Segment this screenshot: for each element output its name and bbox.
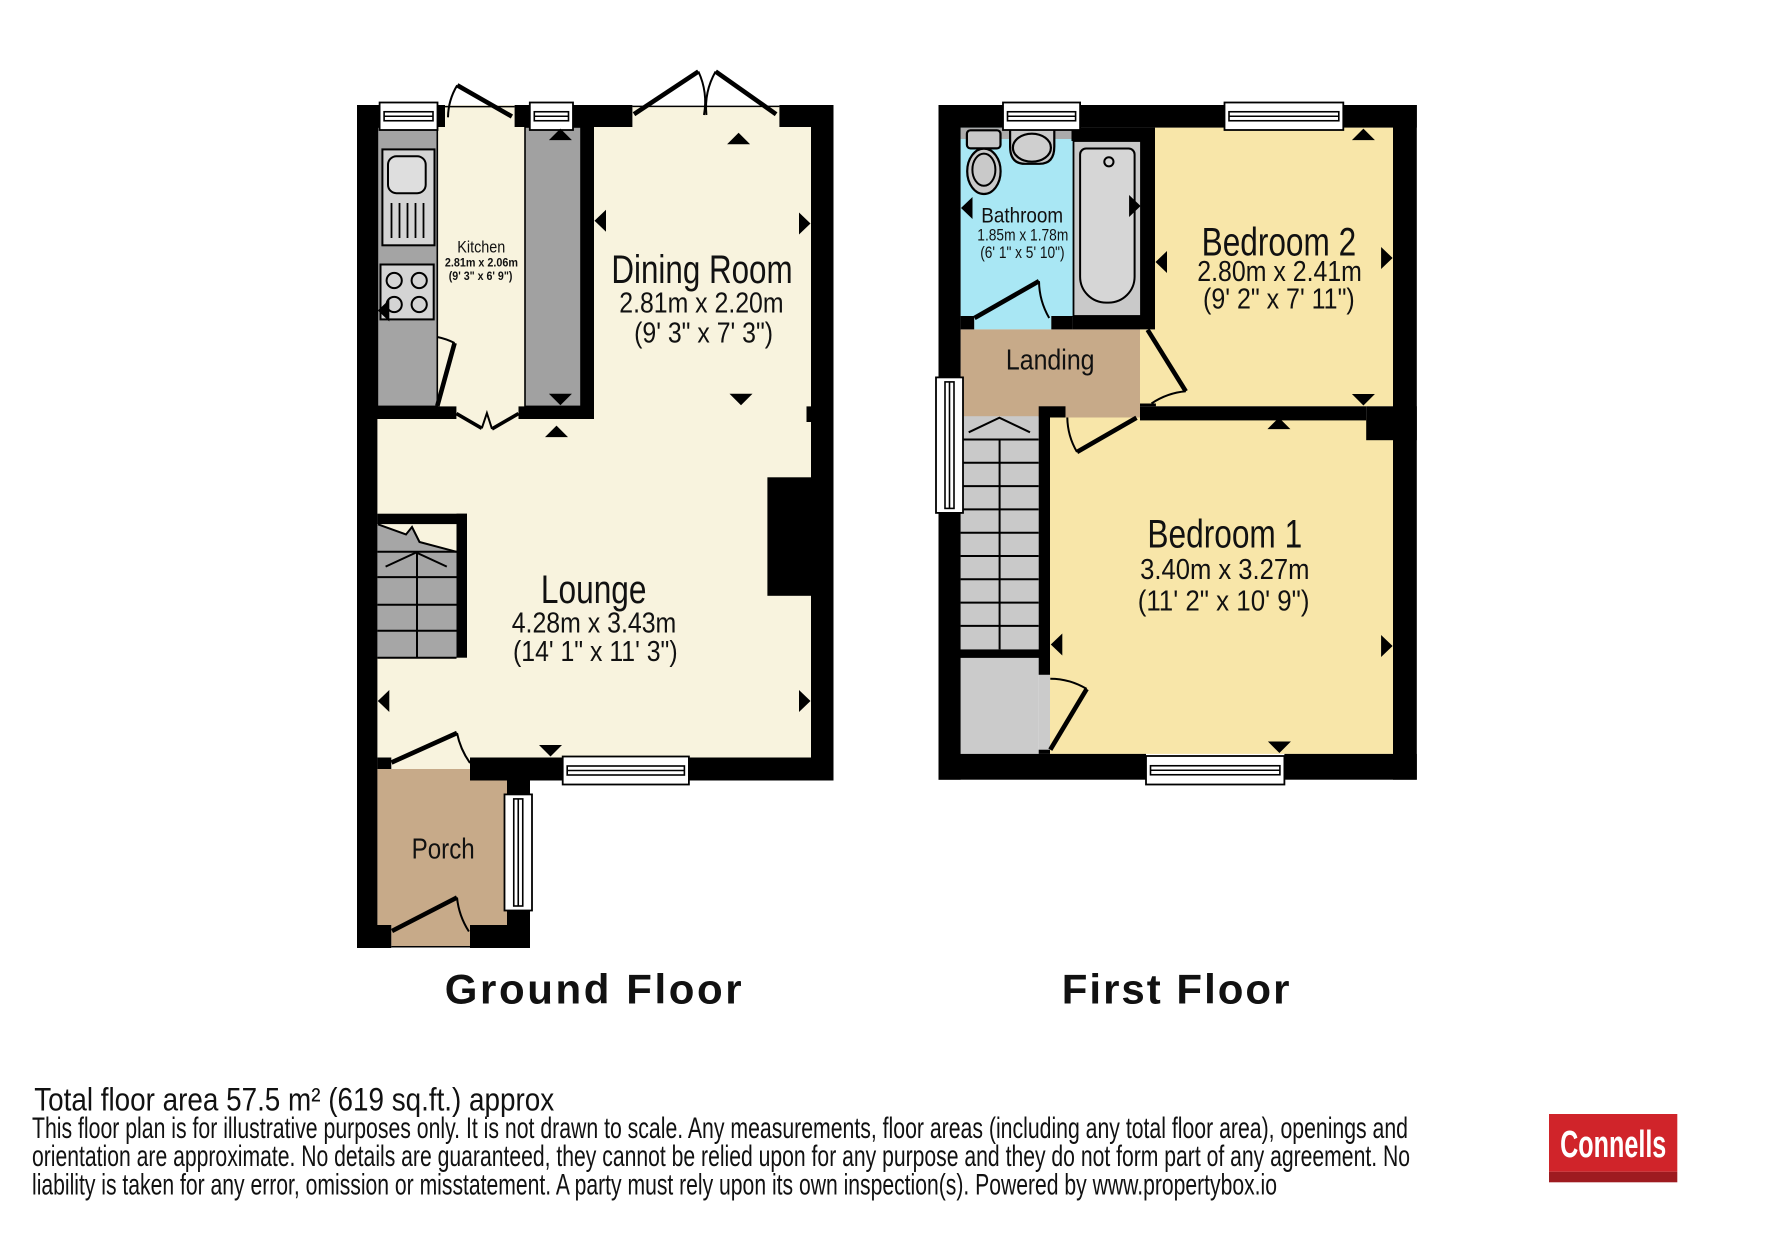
svg-text:(9' 3" x 7' 3"): (9' 3" x 7' 3") (634, 318, 773, 350)
svg-text:This floor plan is for illustr: This floor plan is for illustrative purp… (32, 1113, 1408, 1145)
svg-text:2.81m x 2.06m: 2.81m x 2.06m (445, 255, 518, 269)
svg-text:Dining Room: Dining Room (611, 248, 792, 292)
svg-text:Kitchen: Kitchen (457, 237, 505, 256)
svg-text:liability is taken for any err: liability is taken for any error, omissi… (32, 1170, 1277, 1202)
svg-text:Lounge: Lounge (541, 568, 647, 612)
svg-text:First Floor: First Floor (1062, 965, 1292, 1012)
svg-text:orientation are approximate. N: orientation are approximate. No details … (32, 1141, 1410, 1173)
svg-text:4.28m x 3.43m: 4.28m x 3.43m (512, 608, 677, 640)
svg-text:(6' 1" x 5' 10"): (6' 1" x 5' 10") (980, 243, 1064, 262)
svg-text:(9' 3" x 6' 9"): (9' 3" x 6' 9") (449, 269, 513, 283)
svg-text:Landing: Landing (1006, 344, 1095, 376)
svg-text:(11' 2" x 10' 9"): (11' 2" x 10' 9") (1138, 586, 1310, 618)
svg-text:(9' 2" x 7' 11"): (9' 2" x 7' 11") (1203, 283, 1355, 315)
svg-text:3.40m x 3.27m: 3.40m x 3.27m (1140, 554, 1309, 586)
svg-text:Bathroom: Bathroom (981, 205, 1063, 228)
svg-text:Connells: Connells (1560, 1124, 1666, 1166)
svg-text:Porch: Porch (412, 834, 475, 866)
svg-text:Bedroom 1: Bedroom 1 (1147, 513, 1302, 557)
svg-text:1.85m x 1.78m: 1.85m x 1.78m (977, 226, 1068, 245)
svg-text:2.81m x 2.20m: 2.81m x 2.20m (619, 288, 783, 320)
svg-text:(14' 1" x 11' 3"): (14' 1" x 11' 3") (513, 636, 678, 668)
svg-text:Ground Floor: Ground Floor (445, 965, 744, 1012)
